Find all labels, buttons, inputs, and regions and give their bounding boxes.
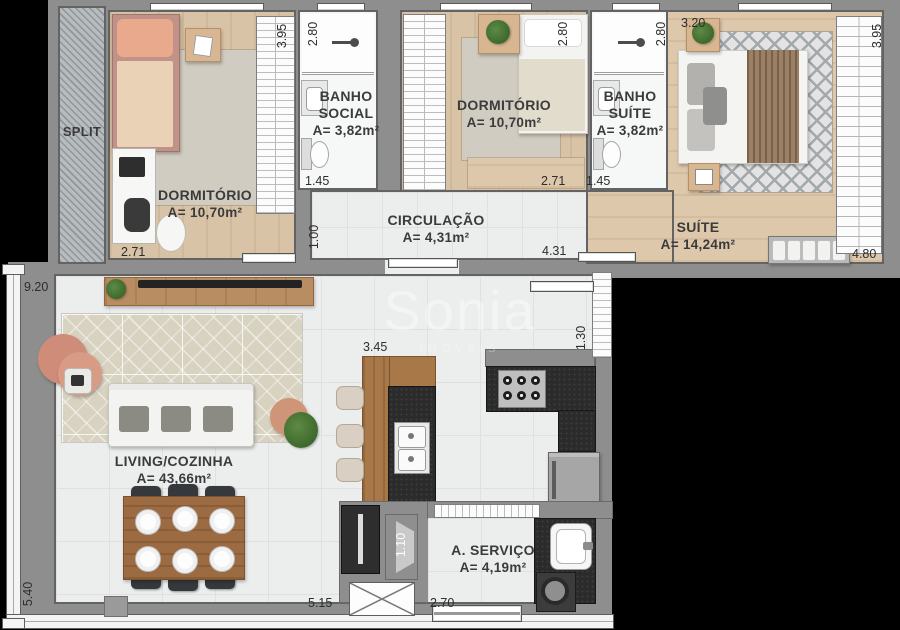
dim-3-95: 3.95: [870, 16, 884, 56]
plate: [135, 509, 161, 535]
dimension-band-left: [6, 268, 21, 628]
plant: [284, 412, 318, 448]
dining-table: [123, 496, 245, 580]
room-name: LIVING/COZINHA: [104, 453, 244, 470]
sofa-cushion: [161, 406, 191, 432]
dim-3-20: 3.20: [681, 16, 705, 30]
side-table: [64, 368, 92, 394]
shaft-box: [349, 582, 415, 616]
bench-cushion: [787, 240, 801, 261]
room-name: DORMITÓRIO: [135, 187, 275, 204]
dim-2-71: 2.71: [541, 174, 565, 188]
sliding-door: [242, 253, 296, 263]
shower-arm: [618, 41, 640, 44]
sideboard: [468, 158, 584, 188]
plate: [209, 508, 235, 534]
notebook: [193, 35, 214, 57]
plate: [135, 546, 161, 572]
shower-arm: [332, 41, 354, 44]
room-name: A. SERVIÇO: [423, 542, 563, 559]
bar-stool: [336, 386, 364, 410]
dim-2-71: 2.71: [121, 245, 145, 259]
kitchen-window: [592, 272, 612, 358]
nightstand: [688, 163, 720, 191]
single-bed: [112, 14, 180, 152]
plate: [172, 506, 198, 532]
toilet-bowl: [310, 141, 329, 168]
bar-stool: [336, 424, 364, 448]
double-bed: [678, 50, 808, 164]
dim-3-95: 3.95: [275, 16, 289, 56]
tray: [71, 375, 84, 386]
burner: [517, 376, 526, 385]
room-area: A= 4,31m²: [366, 229, 506, 246]
x-mark-icon: [350, 583, 414, 615]
fridge-handle: [552, 461, 556, 499]
room-servico-label: A. SERVIÇO A= 4,19m²: [423, 542, 563, 576]
toilet-bowl: [602, 141, 621, 168]
dim-2-80: 2.80: [654, 14, 668, 54]
faucet: [583, 542, 593, 550]
dim-1-10: 1.10: [394, 525, 408, 565]
room-suite-label: SUÍTE A= 14,24m²: [628, 219, 768, 253]
dim-1-45: 1.45: [305, 174, 329, 188]
refrigerator: [548, 452, 600, 508]
plant: [106, 279, 126, 299]
bench-cushion: [802, 240, 816, 261]
burner: [531, 376, 540, 385]
dim-4-80: 4.80: [852, 247, 876, 261]
picture-frame: [695, 169, 713, 185]
bar-stool: [336, 458, 364, 482]
burner: [503, 391, 512, 400]
tv: [138, 280, 302, 288]
nightstand: [185, 28, 221, 62]
sliding-door: [388, 258, 458, 268]
burner: [503, 376, 512, 385]
bed-throw: [747, 50, 799, 163]
room-living-label: LIVING/COZINHA A= 43,66m²: [104, 453, 244, 487]
room-dormitorio-2-label: DORMITÓRIO A= 10,70m²: [434, 97, 574, 131]
room-name: BANHO: [585, 88, 675, 105]
laptop: [119, 157, 145, 177]
dim-1-45: 1.45: [586, 174, 610, 188]
dim-2-70: 2.70: [430, 596, 454, 610]
dim-2-80: 2.80: [306, 14, 320, 54]
room-name: SOCIAL: [301, 105, 391, 122]
dimension-marker: [2, 618, 25, 629]
plate: [172, 548, 198, 574]
sofa: [108, 383, 254, 447]
dimension-marker: [2, 264, 25, 275]
room-banho-suite-label: BANHO SUÍTE A= 3,82m²: [585, 88, 675, 139]
sofa-cushion: [119, 406, 149, 432]
dim-5-40: 5.40: [21, 574, 35, 614]
burner: [517, 391, 526, 400]
bed-pillow: [117, 19, 173, 57]
dim-1-30: 1.30: [574, 318, 588, 358]
room-area: A= 4,19m²: [423, 559, 563, 576]
bed-mattress: [117, 61, 173, 147]
room-name: SUÍTE: [585, 105, 675, 122]
column: [104, 596, 128, 617]
bench-cushion: [817, 240, 831, 261]
kitchen-island-side: [362, 356, 390, 510]
oven-handle: [358, 514, 363, 564]
sliding-door: [578, 252, 636, 262]
burner: [531, 391, 540, 400]
dim-9-20: 9.20: [24, 280, 48, 294]
drain: [408, 456, 414, 462]
room-dormitorio-1-label: DORMITÓRIO A= 10,70m²: [135, 187, 275, 221]
sofa-cushion: [203, 406, 233, 432]
bed-pillow: [703, 87, 727, 125]
dim-2-80: 2.80: [556, 14, 570, 54]
plant: [486, 20, 510, 44]
bed-pillow: [524, 19, 582, 47]
drain: [408, 433, 414, 439]
dim-1-00: 1.00: [307, 217, 321, 257]
room-banho-social-label: BANHO SOCIAL A= 3,82m²: [301, 88, 391, 139]
room-name: CIRCULAÇÃO: [366, 212, 506, 229]
room-name: DORMITÓRIO: [434, 97, 574, 114]
dim-5-15: 5.15: [308, 596, 332, 610]
tall-cabinet: [341, 505, 380, 574]
dim-4-31: 4.31: [542, 244, 566, 258]
cooktop: [498, 370, 546, 408]
room-area: A= 10,70m²: [434, 114, 574, 131]
washing-machine: [536, 572, 576, 612]
plate: [209, 546, 235, 572]
floor-plan: SPLIT DORMITÓRIO A= 10,70m² 3.95 2.71 BA…: [0, 0, 900, 630]
dimension-band-bottom: [6, 614, 614, 629]
room-area: A= 14,24m²: [628, 236, 768, 253]
dim-3-45: 3.45: [363, 340, 387, 354]
double-sink: [394, 422, 430, 474]
room-split-label: SPLIT: [60, 123, 104, 140]
washer-drum: [541, 577, 569, 605]
service-window: [434, 504, 540, 518]
kitchen-counter: [558, 410, 596, 452]
bench-cushion: [772, 240, 786, 261]
room-area: A= 3,82m²: [301, 122, 391, 139]
room-name: BANHO: [301, 88, 391, 105]
room-name: SUÍTE: [628, 219, 768, 236]
room-circulacao-label: CIRCULAÇÃO A= 4,31m²: [366, 212, 506, 246]
sliding-door: [530, 281, 594, 292]
room-area: A= 3,82m²: [585, 122, 675, 139]
room-area: A= 10,70m²: [135, 204, 275, 221]
